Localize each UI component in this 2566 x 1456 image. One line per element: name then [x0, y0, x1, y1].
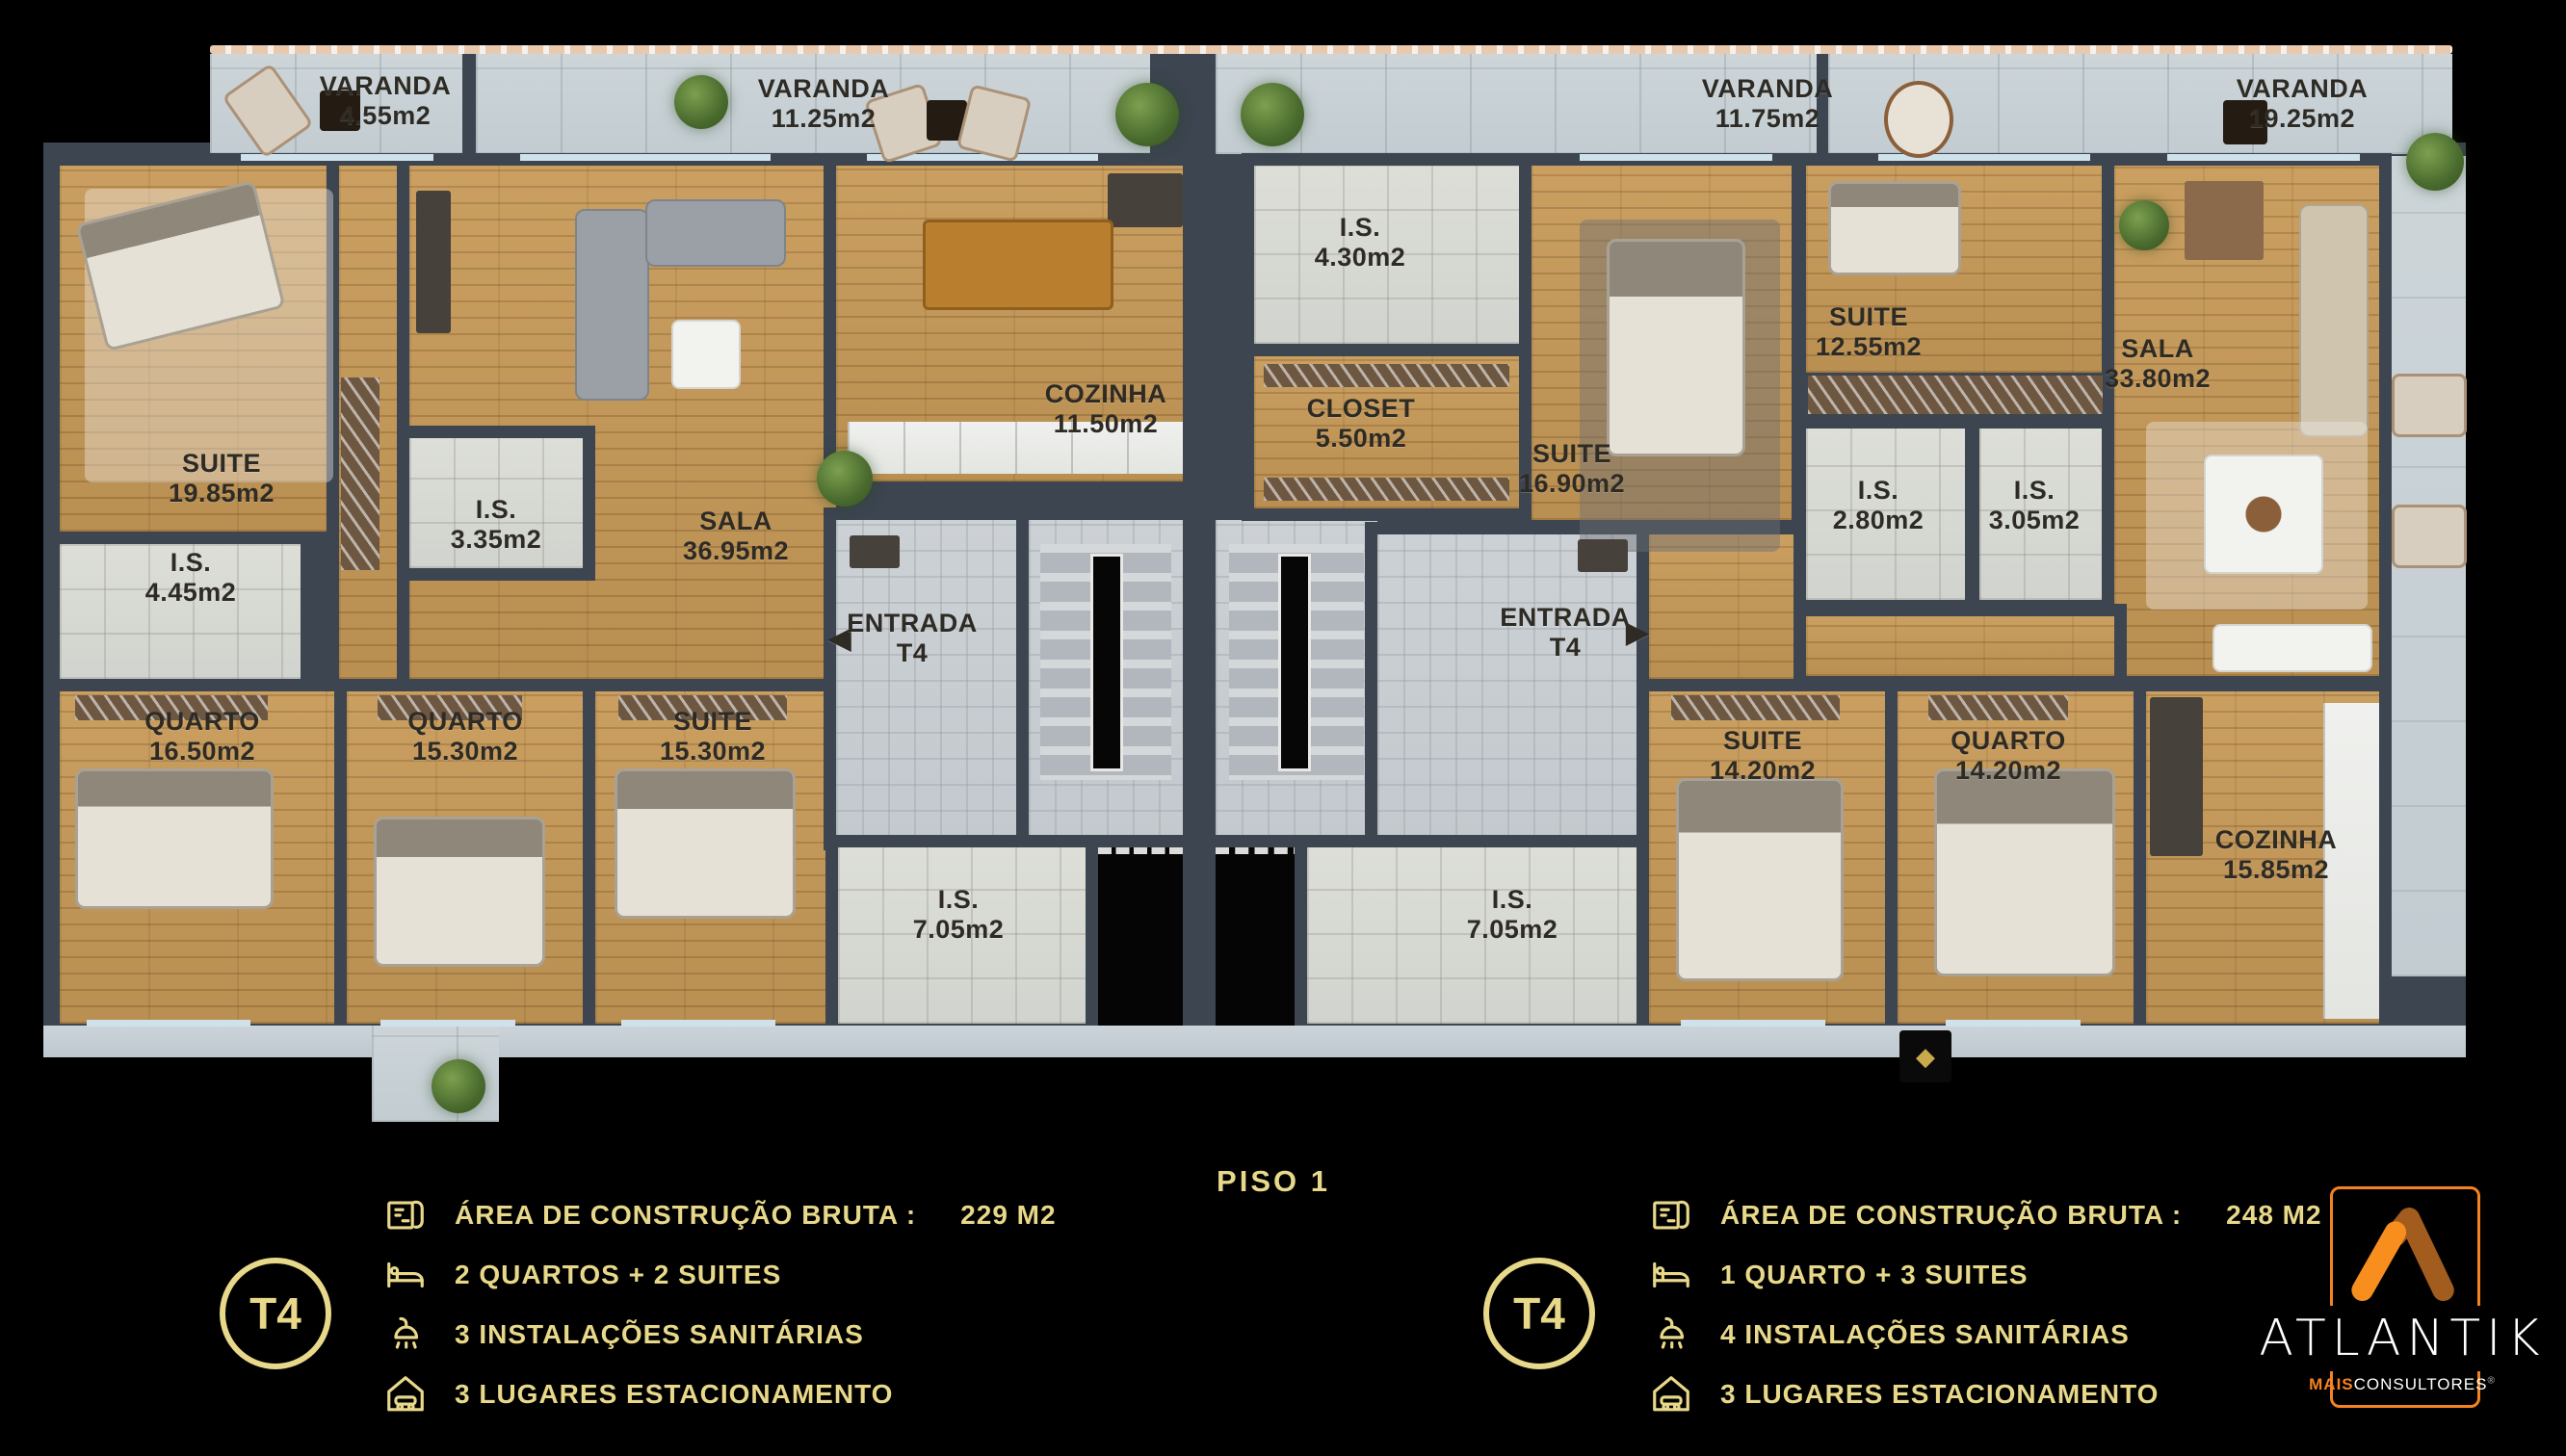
- bed: [75, 768, 274, 909]
- entry-console: [850, 535, 900, 568]
- marker-diamond-icon: ◆: [1916, 1042, 1935, 1072]
- sofa: [2299, 204, 2369, 437]
- legend-right-row-parking: 3 LUGARES ESTACIONAMENTO: [1649, 1371, 2159, 1417]
- closet-rail: [1264, 478, 1509, 501]
- lounge-chair: [2392, 505, 2467, 568]
- garage-icon: [1649, 1372, 1693, 1417]
- legend-right-row-area: ÁREA DE CONSTRUÇÃO BRUTA : 248 M2: [1649, 1192, 2322, 1238]
- legend-left-row-parking: 3 LUGARES ESTACIONAMENTO: [383, 1371, 893, 1417]
- wardrobe-corridor-left: [341, 377, 380, 570]
- room-name: VARANDA: [1702, 74, 1834, 104]
- window: [621, 1020, 775, 1027]
- room-name: SUITE: [660, 707, 766, 737]
- room-area: 3.05m2: [1989, 506, 2081, 535]
- label-varanda-3: VARANDA 11.75m2: [1702, 74, 1834, 134]
- stair-void-right: [1216, 847, 1307, 1030]
- balcony-railing: [210, 45, 2452, 54]
- lounge-chair: [2392, 374, 2467, 437]
- room-area: 15.30m2: [407, 737, 523, 767]
- entry-arrow-right-icon: ▶: [1626, 618, 1649, 648]
- room-area: 16.50m2: [144, 737, 260, 767]
- hanging-chair: [1884, 81, 1953, 158]
- shower-icon: [383, 1313, 428, 1357]
- label-entrada-left: ENTRADA T4: [847, 609, 978, 668]
- registered-icon: ®: [2487, 1375, 2495, 1386]
- room-area: T4: [1500, 633, 1631, 663]
- room-area: 15.85m2: [2215, 855, 2338, 885]
- label-is-445: I.S. 4.45m2: [145, 548, 237, 608]
- floor-title: PISO 1: [1217, 1164, 1330, 1199]
- room-name: ENTRADA: [1500, 603, 1631, 633]
- floorplan-icon: [1649, 1193, 1693, 1237]
- window: [1946, 1020, 2081, 1027]
- room-area: 3.35m2: [451, 525, 542, 555]
- legend-left-row-area: ÁREA DE CONSTRUÇÃO BRUTA : 229 M2: [383, 1192, 1057, 1238]
- room-corridor-right: [1806, 616, 2114, 676]
- sofa: [645, 199, 786, 267]
- plant: [2406, 133, 2464, 191]
- dining-table: [2204, 455, 2323, 574]
- label-suite-1530: SUITE 15.30m2: [660, 707, 766, 767]
- room-area: 7.05m2: [913, 915, 1005, 945]
- label-quarto-1420: QUARTO 14.20m2: [1951, 726, 2066, 786]
- tv-console: [416, 191, 451, 333]
- window: [87, 1020, 250, 1027]
- room-name: SALA: [2105, 334, 2211, 364]
- closet-rail: [1264, 364, 1509, 387]
- bed: [1676, 778, 1844, 981]
- bed: [1828, 181, 1961, 275]
- garage-icon: [383, 1372, 428, 1417]
- legend-label: ÁREA DE CONSTRUÇÃO BRUTA :: [455, 1200, 916, 1231]
- plant: [2119, 200, 2169, 250]
- room-name: QUARTO: [144, 707, 260, 737]
- room-name: CLOSET: [1307, 394, 1416, 424]
- stair-opening-left: [1093, 557, 1120, 768]
- room-name: VARANDA: [2237, 74, 2369, 104]
- room-area: 19.25m2: [2237, 104, 2369, 134]
- room-name: SUITE: [169, 449, 275, 479]
- legend-right-row-bathrooms: 4 INSTALAÇÕES SANITÁRIAS: [1649, 1312, 2130, 1358]
- label-suite-1255: SUITE 12.55m2: [1816, 302, 1922, 362]
- room-area: 11.50m2: [1045, 409, 1167, 439]
- sofa: [575, 209, 649, 401]
- label-suite-1420: SUITE 14.20m2: [1710, 726, 1816, 786]
- label-is-335: I.S. 3.35m2: [451, 495, 542, 555]
- room-entrada-right: [1377, 534, 1637, 838]
- bed: [1934, 768, 2115, 976]
- room-area: 2.80m2: [1833, 506, 1924, 535]
- label-is-705-right: I.S. 7.05m2: [1467, 885, 1558, 945]
- legend-label: 3 LUGARES ESTACIONAMENTO: [455, 1379, 893, 1410]
- room-area: 4.30m2: [1315, 243, 1406, 273]
- legend-left-row-bathrooms: 3 INSTALAÇÕES SANITÁRIAS: [383, 1312, 864, 1358]
- logo-wordmark: ATLANTIK: [2248, 1306, 2556, 1371]
- legend-label: 1 QUARTO + 3 SUITES: [1720, 1260, 2029, 1290]
- dining-table: [923, 220, 1113, 310]
- label-quarto-1650: QUARTO 16.50m2: [144, 707, 260, 767]
- room-area: 11.75m2: [1702, 104, 1834, 134]
- unit-badge-right: T4: [1483, 1258, 1595, 1369]
- room-name: I.S.: [1989, 476, 2081, 506]
- label-is-430: I.S. 4.30m2: [1315, 213, 1406, 273]
- kitchen-dark-counter-left: [1108, 173, 1183, 227]
- unit-badge-left: T4: [220, 1258, 331, 1369]
- bed-icon: [1649, 1253, 1693, 1297]
- atlantik-mountain-icon: [2344, 1204, 2460, 1304]
- plant: [1115, 83, 1179, 146]
- label-quarto-1530: QUARTO 15.30m2: [407, 707, 523, 767]
- label-varanda-4: VARANDA 19.25m2: [2237, 74, 2369, 134]
- legend-label: 3 INSTALAÇÕES SANITÁRIAS: [455, 1319, 864, 1350]
- floorplan-icon: [383, 1193, 428, 1237]
- legend-label: 2 QUARTOS + 2 SUITES: [455, 1260, 781, 1290]
- label-cozinha-right: COZINHA 15.85m2: [2215, 825, 2338, 885]
- room-name: VARANDA: [320, 71, 452, 101]
- plant: [817, 451, 873, 507]
- long-table: [2213, 624, 2372, 672]
- room-area: 14.20m2: [1951, 756, 2066, 786]
- room-area: 36.95m2: [683, 536, 789, 566]
- wardrobe-suite-1255: [1808, 376, 2103, 414]
- legend-value: 248 M2: [2226, 1200, 2321, 1231]
- room-area: 11.25m2: [758, 104, 890, 134]
- varanda-divider-wall: [462, 54, 476, 154]
- label-is-280: I.S. 2.80m2: [1833, 476, 1924, 535]
- room-area: T4: [847, 638, 978, 668]
- stair-void-left: [1098, 847, 1183, 1030]
- room-area: 15.30m2: [660, 737, 766, 767]
- label-entrada-right: ENTRADA T4: [1500, 603, 1631, 663]
- room-name: I.S.: [913, 885, 1005, 915]
- armchair: [2185, 181, 2264, 260]
- plan-marker: ◆: [1899, 1030, 1951, 1082]
- window: [520, 154, 771, 161]
- logo-subtitle-bold: MAIS: [2309, 1375, 2354, 1393]
- room-name: VARANDA: [758, 74, 890, 104]
- label-is-705-left: I.S. 7.05m2: [913, 885, 1005, 945]
- label-sala-left: SALA 36.95m2: [683, 507, 789, 566]
- room-name: ENTRADA: [847, 609, 978, 638]
- room-area: 4.45m2: [145, 578, 237, 608]
- label-varanda-2: VARANDA 11.25m2: [758, 74, 890, 134]
- wardrobe-quarto-1420: [1928, 695, 2068, 720]
- bed-icon: [383, 1253, 428, 1297]
- room-name: I.S.: [1467, 885, 1558, 915]
- label-suite-1690: SUITE 16.90m2: [1519, 439, 1625, 499]
- room-name: I.S.: [1315, 213, 1406, 243]
- room-area: 12.55m2: [1816, 332, 1922, 362]
- logo-subtitle-rest: CONSULTORES: [2354, 1375, 2488, 1393]
- legend-label: ÁREA DE CONSTRUÇÃO BRUTA :: [1720, 1200, 2182, 1231]
- room-area: 7.05m2: [1467, 915, 1558, 945]
- label-varanda-1: VARANDA 4.55m2: [320, 71, 452, 131]
- entry-console: [1578, 539, 1628, 572]
- window: [1681, 1020, 1825, 1027]
- room-name: QUARTO: [1951, 726, 2066, 756]
- logo-subtitle: MAISCONSULTORES®: [2248, 1375, 2556, 1394]
- room-name: SUITE: [1519, 439, 1625, 469]
- room-area: 4.55m2: [320, 101, 452, 131]
- window: [380, 1020, 515, 1027]
- room-name: I.S.: [451, 495, 542, 525]
- room-name: I.S.: [1833, 476, 1924, 506]
- label-suite-1985: SUITE 19.85m2: [169, 449, 275, 508]
- room-name: QUARTO: [407, 707, 523, 737]
- bed: [1607, 239, 1745, 456]
- label-sala-right: SALA 33.80m2: [2105, 334, 2211, 394]
- room-hall-right: [1649, 534, 1806, 679]
- room-name: SUITE: [1816, 302, 1922, 332]
- wardrobe-suite-1420: [1671, 695, 1840, 720]
- room-area: 16.90m2: [1519, 469, 1625, 499]
- room-area: 33.80m2: [2105, 364, 2211, 394]
- kitchen-tall-cabinet-right: [2150, 697, 2203, 856]
- legend-label: 3 LUGARES ESTACIONAMENTO: [1720, 1379, 2159, 1410]
- room-name: SALA: [683, 507, 789, 536]
- window: [1580, 154, 1772, 161]
- legend-value: 229 M2: [960, 1200, 1056, 1231]
- room-name: COZINHA: [2215, 825, 2338, 855]
- bed: [615, 768, 796, 919]
- label-closet-550: CLOSET 5.50m2: [1307, 394, 1416, 454]
- legend-left-row-bedrooms: 2 QUARTOS + 2 SUITES: [383, 1252, 781, 1298]
- legend-right-row-bedrooms: 1 QUARTO + 3 SUITES: [1649, 1252, 2029, 1298]
- label-cozinha-left: COZINHA 11.50m2: [1045, 379, 1167, 439]
- room-area: 5.50m2: [1307, 424, 1416, 454]
- room-area: 19.85m2: [169, 479, 275, 508]
- plant: [432, 1059, 485, 1113]
- window: [2167, 154, 2360, 161]
- room-name: COZINHA: [1045, 379, 1167, 409]
- plant: [674, 75, 728, 129]
- coffee-table: [671, 320, 741, 389]
- legend-label: 4 INSTALAÇÕES SANITÁRIAS: [1720, 1319, 2130, 1350]
- shower-icon: [1649, 1313, 1693, 1357]
- room-name: I.S.: [145, 548, 237, 578]
- label-is-305: I.S. 3.05m2: [1989, 476, 2081, 535]
- plant: [1241, 83, 1304, 146]
- bed: [374, 817, 545, 967]
- stair-opening-right: [1281, 557, 1308, 768]
- room-area: 14.20m2: [1710, 756, 1816, 786]
- room-name: SUITE: [1710, 726, 1816, 756]
